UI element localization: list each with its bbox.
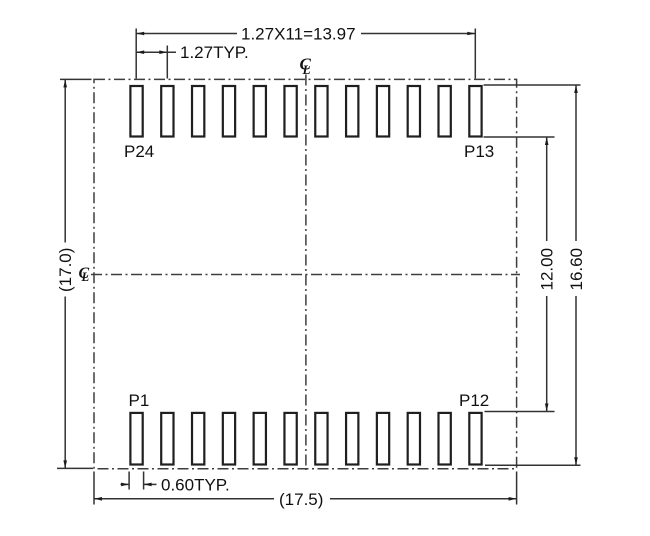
svg-text:1.27X11=13.97: 1.27X11=13.97 (241, 25, 356, 44)
svg-text:L: L (81, 270, 90, 284)
svg-text:1.27TYP.: 1.27TYP. (180, 43, 249, 62)
svg-text:P1: P1 (129, 391, 150, 410)
svg-text:P13: P13 (464, 142, 494, 161)
svg-text:0.60TYP.: 0.60TYP. (161, 476, 230, 495)
svg-text:16.60: 16.60 (567, 248, 586, 291)
svg-text:(17.5): (17.5) (279, 490, 323, 509)
svg-text:P12: P12 (459, 391, 489, 410)
svg-text:P24: P24 (124, 142, 154, 161)
svg-text:12.00: 12.00 (538, 248, 557, 291)
svg-text:L: L (302, 62, 311, 77)
svg-text:(17.0): (17.0) (56, 248, 75, 292)
